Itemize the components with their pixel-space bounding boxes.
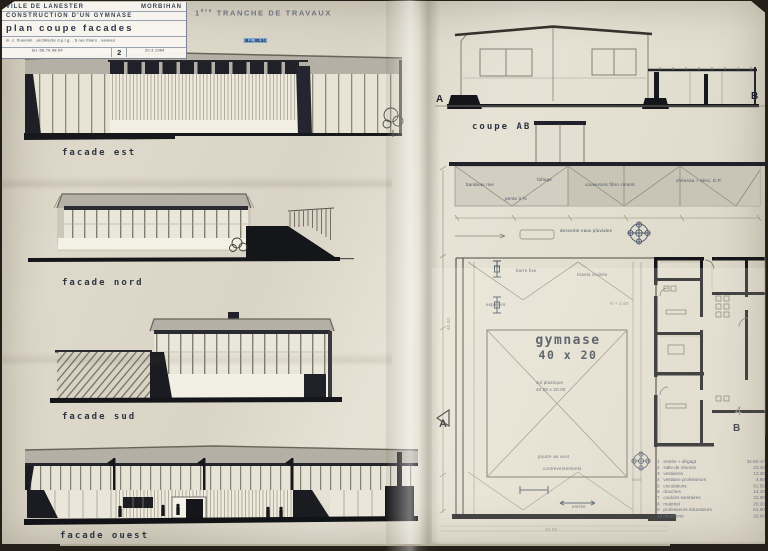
annotation: sol plastique [536,374,586,380]
annotation: couverture fibro ciment [585,176,676,182]
annotation: barre fixe [516,262,553,268]
photo-background: VILLE DE LANESTER MORBIHAN CONSTRUCTION … [0,0,768,551]
paper-edge [60,544,670,546]
department-name: MORBIHAN [141,4,182,10]
facade-sud-label: facade sud [62,412,136,422]
hall-dimensions: 40 x 20 [502,348,634,362]
section-marker-b: B [751,91,758,102]
sheet-number: 2 [111,48,127,57]
annotation: entrée [572,498,597,504]
hall-title: gymnase 40 x 20 [502,333,634,362]
project-title: CONSTRUCTION D'UN GYMNASE [2,12,186,21]
approval-stamp: B.L. 08.34 [244,38,268,43]
plan-marker-b: B [733,423,740,434]
annotation: 40.00 [440,308,446,330]
annotation: bandeau rive [466,176,517,182]
annotation: espaliers [486,296,522,302]
hall-name: gymnase [502,333,634,348]
section-marker-a: A [436,94,443,105]
sheet-title: plan coupe facades [2,21,186,37]
facade-sud-drawing [50,312,342,403]
coupe-ab-label: coupe AB [472,122,531,132]
facade-est-drawing [24,53,403,140]
phase-ordinal: ère [201,8,213,14]
architectural-linework [0,0,768,551]
phase-header: 1ère TRANCHE DE TRAVAUX [195,8,332,18]
annotation: tirants croisés [577,266,632,272]
plan-marker-a: A [439,418,447,430]
facade-est-label: facade est [62,148,136,158]
room-legend: 1entrée + dégagt34.60 m² 2salle de réuni… [657,459,765,521]
coupe-ab-drawing [435,27,765,110]
facade-nord-drawing [28,194,354,262]
annotation: contreventements [543,460,613,466]
annotation: nord [632,471,650,477]
architect-line: m. c. thoumin . architecte d.p.l.g. . 6 … [6,38,115,43]
annotation: 20.00 [545,521,567,527]
facade-ouest-label: facade ouest [60,531,149,541]
annotation: poutre au vent [538,448,595,454]
date-stamp: 20.3.1964 [145,48,165,53]
facade-ouest-drawing [24,446,418,525]
legend-row: 10chaufferie20.00 [657,513,765,519]
annotation: R + 2.60 [610,295,644,301]
annotation: chéneau + desc. E.P. [676,172,759,178]
facade-nord-label: facade nord [62,278,144,288]
annotation: pente 3 % [505,190,545,196]
city-name: VILLE DE LANESTER [6,4,84,10]
grid-number: 4 [735,404,742,418]
annotation: descente eaux pluviales [560,222,655,228]
phase-text: TRANCHE DE TRAVAUX [217,9,332,18]
compass-rose-icon [632,452,650,470]
annotation: 40.00 x 20.00 [536,381,590,387]
annotation: faîtage [537,171,564,177]
title-block: VILLE DE LANESTER MORBIHAN CONSTRUCTION … [2,2,187,59]
phone-line: tél. 66.79.98.04 [32,48,63,53]
